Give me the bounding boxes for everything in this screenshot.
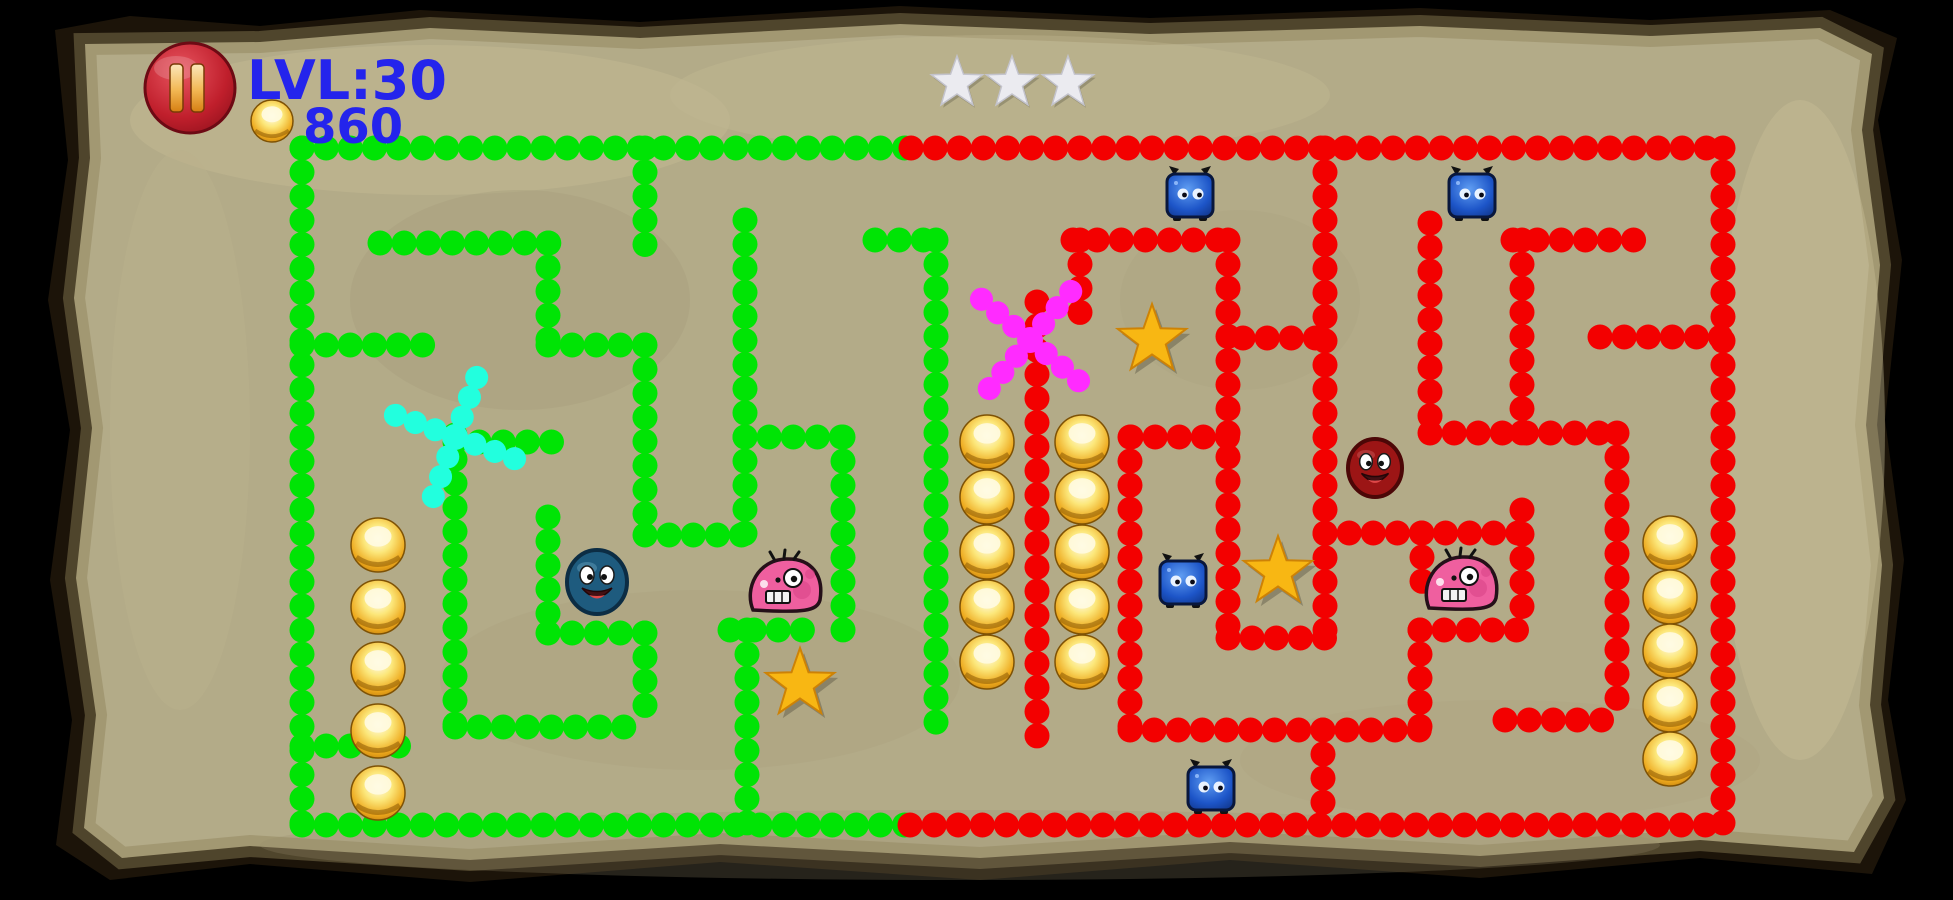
gold-coin [1055, 415, 1109, 469]
gold-coin [1643, 678, 1697, 732]
gold-coin [1055, 580, 1109, 634]
red-ball-character [1348, 439, 1402, 497]
gold-coin [1055, 635, 1109, 689]
blue-square-monster [1449, 166, 1495, 221]
blue-square-monster [1167, 166, 1213, 221]
blue-square-monster [1188, 759, 1234, 814]
gold-coin [351, 642, 405, 696]
gold-coin [960, 635, 1014, 689]
coin-counter-icon [251, 100, 293, 142]
game-canvas[interactable]: LVL:30 860 [0, 0, 1953, 900]
gold-coin [960, 415, 1014, 469]
gold-coin [351, 518, 405, 572]
pause-button[interactable] [145, 43, 235, 133]
coin-counter-value: 860 [303, 99, 403, 155]
gold-coin [251, 100, 293, 142]
game-screen: LVL:30 860 [0, 0, 1953, 900]
blue-square-monster [1160, 553, 1206, 608]
gold-coin [351, 580, 405, 634]
gold-coin [1643, 570, 1697, 624]
gold-coin [1055, 525, 1109, 579]
gold-coin [1643, 624, 1697, 678]
gold-coin [960, 470, 1014, 524]
blue-ball-monster [567, 550, 627, 614]
gold-coin [1055, 470, 1109, 524]
gold-coin [1643, 732, 1697, 786]
gold-coin [960, 580, 1014, 634]
gold-coin [351, 704, 405, 758]
gold-coin [351, 766, 405, 820]
gold-coin [1643, 516, 1697, 570]
gold-coin [960, 525, 1014, 579]
